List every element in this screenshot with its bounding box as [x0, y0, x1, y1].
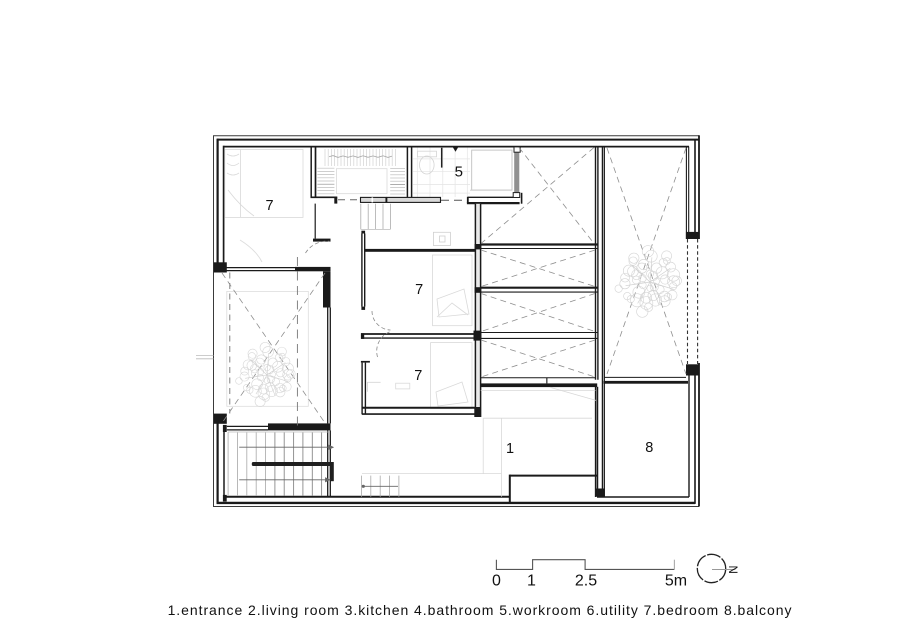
- svg-text:1: 1: [527, 573, 536, 590]
- svg-text:1: 1: [506, 441, 514, 457]
- svg-text:7: 7: [265, 198, 273, 214]
- svg-text:2.5: 2.5: [575, 573, 597, 590]
- svg-text:7: 7: [414, 368, 422, 384]
- svg-text:1.entrance 2.living room 3.kit: 1.entrance 2.living room 3.kitchen 4.bat…: [168, 602, 793, 618]
- svg-text:N: N: [726, 565, 738, 573]
- svg-text:5: 5: [455, 163, 463, 180]
- svg-text:8: 8: [645, 440, 653, 456]
- svg-text:7: 7: [415, 282, 423, 298]
- svg-text:0: 0: [492, 573, 501, 590]
- svg-text:5m: 5m: [665, 573, 687, 590]
